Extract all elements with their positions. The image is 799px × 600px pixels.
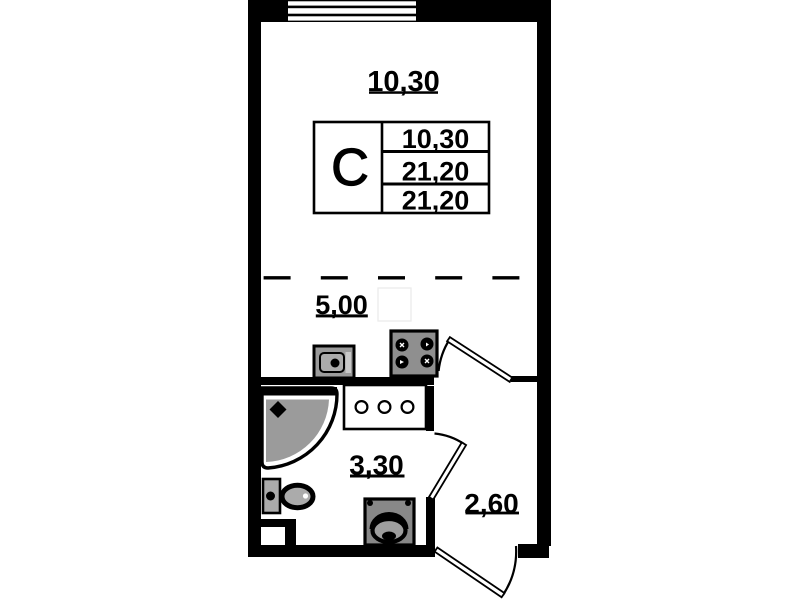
svg-text:С: С (331, 139, 369, 197)
svg-text:10,30: 10,30 (402, 124, 470, 154)
svg-text:21,20: 21,20 (402, 186, 470, 216)
svg-text:21,20: 21,20 (402, 157, 470, 187)
